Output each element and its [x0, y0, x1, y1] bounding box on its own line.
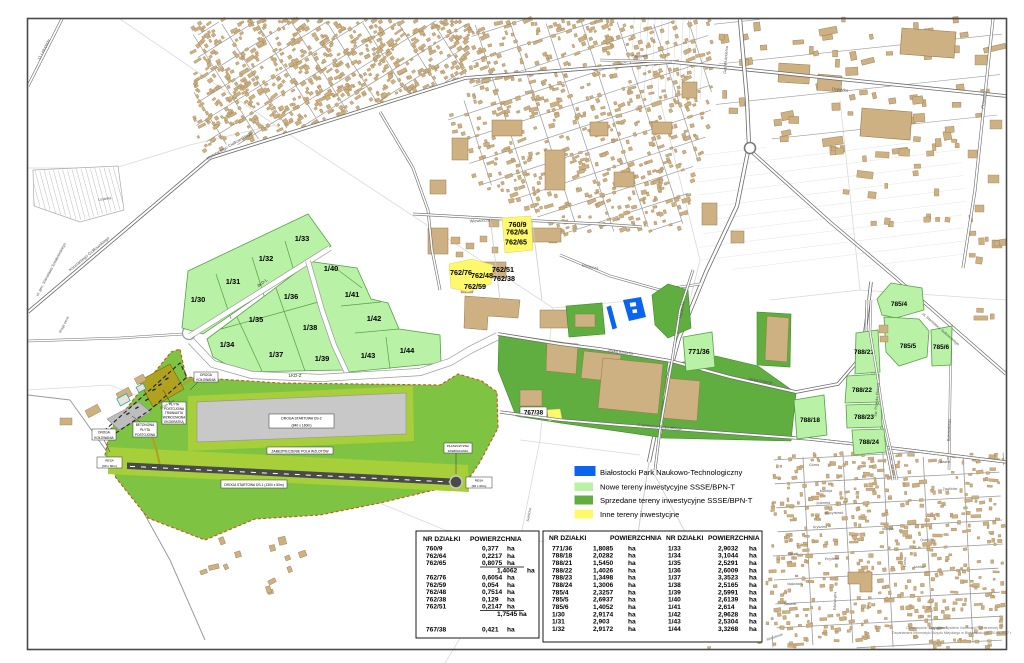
- svg-text:(840 x 160m): (840 x 160m): [292, 424, 312, 428]
- svg-text:1/40: 1/40: [668, 597, 681, 604]
- svg-text:ha: ha: [507, 575, 515, 582]
- svg-text:KOŁOWANIA: KOŁOWANIA: [196, 378, 216, 382]
- svg-text:1/43: 1/43: [361, 351, 376, 360]
- svg-text:0,8075: 0,8075: [482, 560, 503, 567]
- svg-text:1/40: 1/40: [324, 264, 339, 273]
- svg-text:ha: ha: [749, 589, 757, 596]
- svg-text:1/32: 1/32: [259, 254, 274, 263]
- svg-text:POWIERZCHNIA: POWIERZCHNIA: [610, 535, 662, 542]
- svg-text:ha: ha: [507, 627, 515, 634]
- svg-text:Stawowa: Stawowa: [632, 54, 648, 59]
- svg-text:Górna: Górna: [809, 463, 819, 467]
- svg-text:0,129: 0,129: [482, 596, 499, 603]
- svg-text:1/32: 1/32: [552, 626, 565, 633]
- svg-text:Sprzedane tereny inwestycyjne: Sprzedane tereny inwestycyjne SSSE/BPN-T: [600, 496, 753, 505]
- svg-text:1/42: 1/42: [367, 314, 382, 323]
- svg-text:762/38: 762/38: [426, 596, 447, 603]
- svg-text:(90 x 60m): (90 x 60m): [472, 484, 487, 488]
- svg-text:1/31: 1/31: [552, 619, 565, 626]
- svg-text:762/59: 762/59: [464, 282, 486, 291]
- svg-text:NR DZIAŁKI: NR DZIAŁKI: [549, 535, 587, 542]
- svg-text:762/48: 762/48: [426, 589, 447, 596]
- svg-text:0,054: 0,054: [482, 582, 499, 589]
- svg-text:Białostocki Park Naukowo-Techn: Białostocki Park Naukowo-Technologiczny: [600, 468, 742, 477]
- svg-text:1/37: 1/37: [668, 575, 681, 582]
- svg-text:ha: ha: [527, 568, 535, 575]
- svg-text:Przylesie: Przylesie: [825, 557, 840, 562]
- svg-text:KOŁOWANIA: KOŁOWANIA: [94, 436, 114, 440]
- svg-text:PŁASZCZYZNA: PŁASZCZYZNA: [447, 444, 470, 448]
- svg-text:2,9032: 2,9032: [718, 545, 739, 552]
- svg-text:0,7514: 0,7514: [482, 589, 503, 596]
- svg-text:771/36: 771/36: [552, 545, 573, 552]
- svg-text:788/23: 788/23: [552, 575, 573, 582]
- svg-text:1/30: 1/30: [191, 295, 206, 304]
- svg-text:Hiacyntowa: Hiacyntowa: [825, 511, 844, 516]
- svg-text:788/23: 788/23: [854, 414, 874, 421]
- svg-text:ha: ha: [628, 597, 636, 604]
- svg-text:ha: ha: [749, 575, 757, 582]
- svg-text:Sasanki: Sasanki: [784, 602, 797, 606]
- svg-text:788/18: 788/18: [552, 553, 573, 560]
- svg-text:POSTOJOWA: POSTOJOWA: [135, 433, 156, 437]
- svg-text:1/36: 1/36: [284, 292, 299, 301]
- svg-text:762/64: 762/64: [426, 553, 447, 560]
- svg-text:ha: ha: [507, 546, 515, 553]
- svg-text:ha: ha: [507, 604, 515, 611]
- svg-text:2,5165: 2,5165: [718, 582, 739, 589]
- svg-text:762/51: 762/51: [492, 265, 514, 274]
- svg-text:1,4026: 1,4026: [593, 567, 614, 574]
- svg-text:0,2217: 0,2217: [482, 553, 503, 560]
- svg-text:785/4: 785/4: [552, 589, 569, 596]
- svg-text:1/37: 1/37: [269, 350, 284, 359]
- svg-text:0,2147: 0,2147: [482, 604, 503, 611]
- svg-text:762/48: 762/48: [471, 271, 493, 280]
- svg-text:762/38: 762/38: [493, 274, 515, 283]
- svg-text:ha: ha: [628, 619, 636, 626]
- svg-text:ha: ha: [749, 582, 757, 589]
- svg-text:1/43: 1/43: [668, 619, 681, 626]
- svg-text:1KD-Z: 1KD-Z: [288, 373, 301, 378]
- svg-text:ha: ha: [628, 611, 636, 618]
- svg-text:788/21: 788/21: [854, 349, 874, 356]
- svg-text:Edukacyjna: Edukacyjna: [833, 592, 838, 611]
- svg-text:1,4052: 1,4052: [593, 604, 614, 611]
- svg-text:2,6009: 2,6009: [718, 567, 739, 574]
- svg-text:788/24: 788/24: [552, 582, 573, 589]
- svg-text:788/24: 788/24: [859, 439, 879, 446]
- svg-text:ha: ha: [507, 553, 515, 560]
- svg-text:1/41: 1/41: [668, 604, 681, 611]
- svg-text:ha: ha: [507, 596, 515, 603]
- svg-text:1/36: 1/36: [668, 567, 681, 574]
- svg-text:Astrów: Astrów: [913, 565, 925, 569]
- svg-text:ha: ha: [749, 553, 757, 560]
- svg-text:ha: ha: [749, 611, 757, 618]
- svg-text:2,6937: 2,6937: [593, 597, 614, 604]
- svg-text:788/18: 788/18: [800, 417, 820, 424]
- svg-text:ha: ha: [628, 626, 636, 633]
- svg-text:3,3268: 3,3268: [718, 626, 739, 633]
- svg-text:Sikorki: Sikorki: [788, 552, 799, 556]
- svg-text:2,9628: 2,9628: [718, 611, 739, 618]
- svg-text:Departament Informatyki Urzędu: Departament Informatyki Urzędu Miejskieg…: [892, 631, 1012, 635]
- svg-text:ha: ha: [507, 582, 515, 589]
- svg-text:Nowe tereny inwestycyjne SSSE/: Nowe tereny inwestycyjne SSSE/BPN-T: [600, 483, 735, 492]
- svg-text:TRAWIASTA: TRAWIASTA: [165, 411, 184, 415]
- svg-text:ha: ha: [628, 567, 636, 574]
- svg-text:1/33: 1/33: [668, 545, 681, 552]
- svg-text:1/38: 1/38: [303, 323, 318, 332]
- svg-text:PŁYTA: PŁYTA: [140, 428, 151, 432]
- svg-text:1/39: 1/39: [315, 354, 330, 363]
- svg-text:762/65: 762/65: [426, 560, 447, 567]
- svg-text:1/34: 1/34: [668, 553, 681, 560]
- svg-text:762/51: 762/51: [426, 604, 447, 611]
- svg-text:ZABEZPIECZENIE POLA WZLOTÓW: ZABEZPIECZENIE POLA WZLOTÓW: [271, 449, 329, 454]
- svg-text:788/21: 788/21: [552, 560, 573, 567]
- svg-text:ha: ha: [628, 553, 636, 560]
- svg-text:RESA: RESA: [475, 478, 484, 482]
- svg-text:2,0282: 2,0282: [593, 553, 614, 560]
- svg-text:RESA: RESA: [105, 458, 114, 462]
- svg-text:POWIERZCHNIA: POWIERZCHNIA: [708, 535, 760, 542]
- svg-text:788/22: 788/22: [552, 567, 573, 574]
- svg-text:ha: ha: [628, 604, 636, 611]
- svg-text:1/35: 1/35: [668, 560, 681, 567]
- svg-text:762/59: 762/59: [426, 582, 447, 589]
- svg-text:0,6054: 0,6054: [482, 575, 503, 582]
- svg-text:1/38: 1/38: [668, 582, 681, 589]
- svg-text:1,3498: 1,3498: [593, 575, 614, 582]
- svg-text:785/4: 785/4: [891, 301, 908, 308]
- svg-text:1/41: 1/41: [345, 290, 360, 299]
- svg-text:EKOKRATKĄ: EKOKRATKĄ: [164, 420, 184, 424]
- svg-text:DROGA: DROGA: [200, 373, 213, 377]
- svg-text:Zelazna: Zelazna: [938, 460, 951, 464]
- svg-text:762/76: 762/76: [426, 575, 447, 582]
- svg-text:1/31: 1/31: [226, 277, 241, 286]
- svg-text:1,5450: 1,5450: [593, 560, 614, 567]
- svg-text:Inne tereny inwestycjne: Inne tereny inwestycjne: [600, 510, 679, 519]
- svg-text:3,1044: 3,1044: [718, 553, 739, 560]
- svg-text:2,5304: 2,5304: [718, 619, 739, 626]
- svg-text:BETONOWA: BETONOWA: [136, 423, 155, 427]
- svg-text:ha: ha: [749, 604, 757, 611]
- svg-text:1/39: 1/39: [668, 589, 681, 596]
- svg-text:Krysztna: Krysztna: [813, 525, 827, 529]
- svg-text:Motyla: Motyla: [882, 527, 894, 531]
- svg-text:2,5991: 2,5991: [718, 589, 739, 596]
- svg-text:ha: ha: [749, 560, 757, 567]
- svg-text:POSTOJOWA: POSTOJOWA: [164, 407, 185, 411]
- svg-text:1/34: 1/34: [220, 340, 235, 349]
- svg-text:Zawilców: Zawilców: [943, 487, 958, 492]
- svg-text:Jesienna: Jesienna: [816, 501, 831, 505]
- svg-text:ha: ha: [749, 545, 757, 552]
- svg-text:2,9174: 2,9174: [593, 611, 614, 618]
- svg-text:ha: ha: [628, 582, 636, 589]
- svg-text:POWIERZCHNIA: POWIERZCHNIA: [470, 536, 522, 543]
- svg-text:DROGA STARTOWA DS-1 (1300 x 50: DROGA STARTOWA DS-1 (1300 x 50m): [224, 483, 284, 487]
- svg-text:767/38: 767/38: [426, 627, 447, 634]
- svg-text:Bukowskiego: Bukowskiego: [947, 419, 952, 442]
- svg-text:1/44: 1/44: [668, 626, 681, 633]
- svg-text:1,3006: 1,3006: [593, 582, 614, 589]
- svg-text:ha: ha: [749, 619, 757, 626]
- svg-text:3,3523: 3,3523: [718, 575, 739, 582]
- svg-text:Opracowanie: Zespół ds. System: Opracowanie: Zespół ds. Systemu Informac…: [906, 626, 998, 630]
- svg-text:ha: ha: [507, 589, 515, 596]
- svg-text:ha: ha: [749, 626, 757, 633]
- svg-text:1/30: 1/30: [552, 611, 565, 618]
- svg-text:ha: ha: [628, 545, 636, 552]
- svg-text:1,8085: 1,8085: [593, 545, 614, 552]
- svg-text:1,7545 ha: 1,7545 ha: [497, 611, 527, 618]
- svg-text:ha: ha: [628, 575, 636, 582]
- svg-text:NR DZIAŁKI: NR DZIAŁKI: [423, 536, 461, 543]
- svg-text:1/44: 1/44: [400, 346, 415, 355]
- svg-text:ha: ha: [628, 560, 636, 567]
- svg-text:2,9172: 2,9172: [593, 626, 614, 633]
- svg-text:785/6: 785/6: [552, 604, 569, 611]
- svg-text:1,4062: 1,4062: [497, 568, 518, 575]
- svg-text:1/42: 1/42: [668, 611, 681, 618]
- svg-text:WZMOCNIONA: WZMOCNIONA: [163, 416, 186, 420]
- svg-text:0,377: 0,377: [482, 546, 499, 553]
- svg-text:ha: ha: [507, 560, 515, 567]
- svg-text:ha: ha: [749, 567, 757, 574]
- svg-text:Macieja: Macieja: [820, 489, 833, 493]
- svg-text:785/6: 785/6: [933, 344, 950, 351]
- svg-text:1/35: 1/35: [249, 315, 264, 324]
- svg-text:762/76: 762/76: [450, 268, 472, 277]
- svg-text:2,6139: 2,6139: [718, 597, 739, 604]
- svg-text:1/33: 1/33: [295, 234, 310, 243]
- svg-text:2,3257: 2,3257: [593, 589, 614, 596]
- svg-text:762/65: 762/65: [505, 238, 527, 247]
- svg-text:NR DZIAŁKI: NR DZIAŁKI: [666, 535, 704, 542]
- svg-text:ha: ha: [628, 589, 636, 596]
- svg-text:760/9: 760/9: [426, 546, 443, 553]
- svg-text:0,421: 0,421: [482, 627, 499, 634]
- svg-text:(90 x 60m): (90 x 60m): [102, 464, 117, 468]
- svg-text:2,614: 2,614: [718, 604, 735, 611]
- svg-text:Malwowa: Malwowa: [787, 582, 802, 587]
- svg-text:DROGA: DROGA: [98, 430, 111, 434]
- svg-text:ZAWRACANIA: ZAWRACANIA: [448, 449, 469, 453]
- svg-text:785/5: 785/5: [552, 597, 569, 604]
- svg-text:DROGA STARTOWA DS-2: DROGA STARTOWA DS-2: [281, 417, 321, 421]
- svg-text:ha: ha: [749, 597, 757, 604]
- svg-text:785/5: 785/5: [900, 343, 917, 350]
- svg-text:Ostróżki: Ostróżki: [920, 538, 934, 542]
- svg-text:2,903: 2,903: [593, 619, 610, 626]
- svg-text:788/22: 788/22: [852, 387, 872, 394]
- svg-text:2,5291: 2,5291: [718, 560, 739, 567]
- svg-text:Dolna: Dolna: [903, 557, 907, 567]
- svg-text:771/36: 771/36: [688, 349, 710, 356]
- svg-text:762/64: 762/64: [506, 228, 528, 237]
